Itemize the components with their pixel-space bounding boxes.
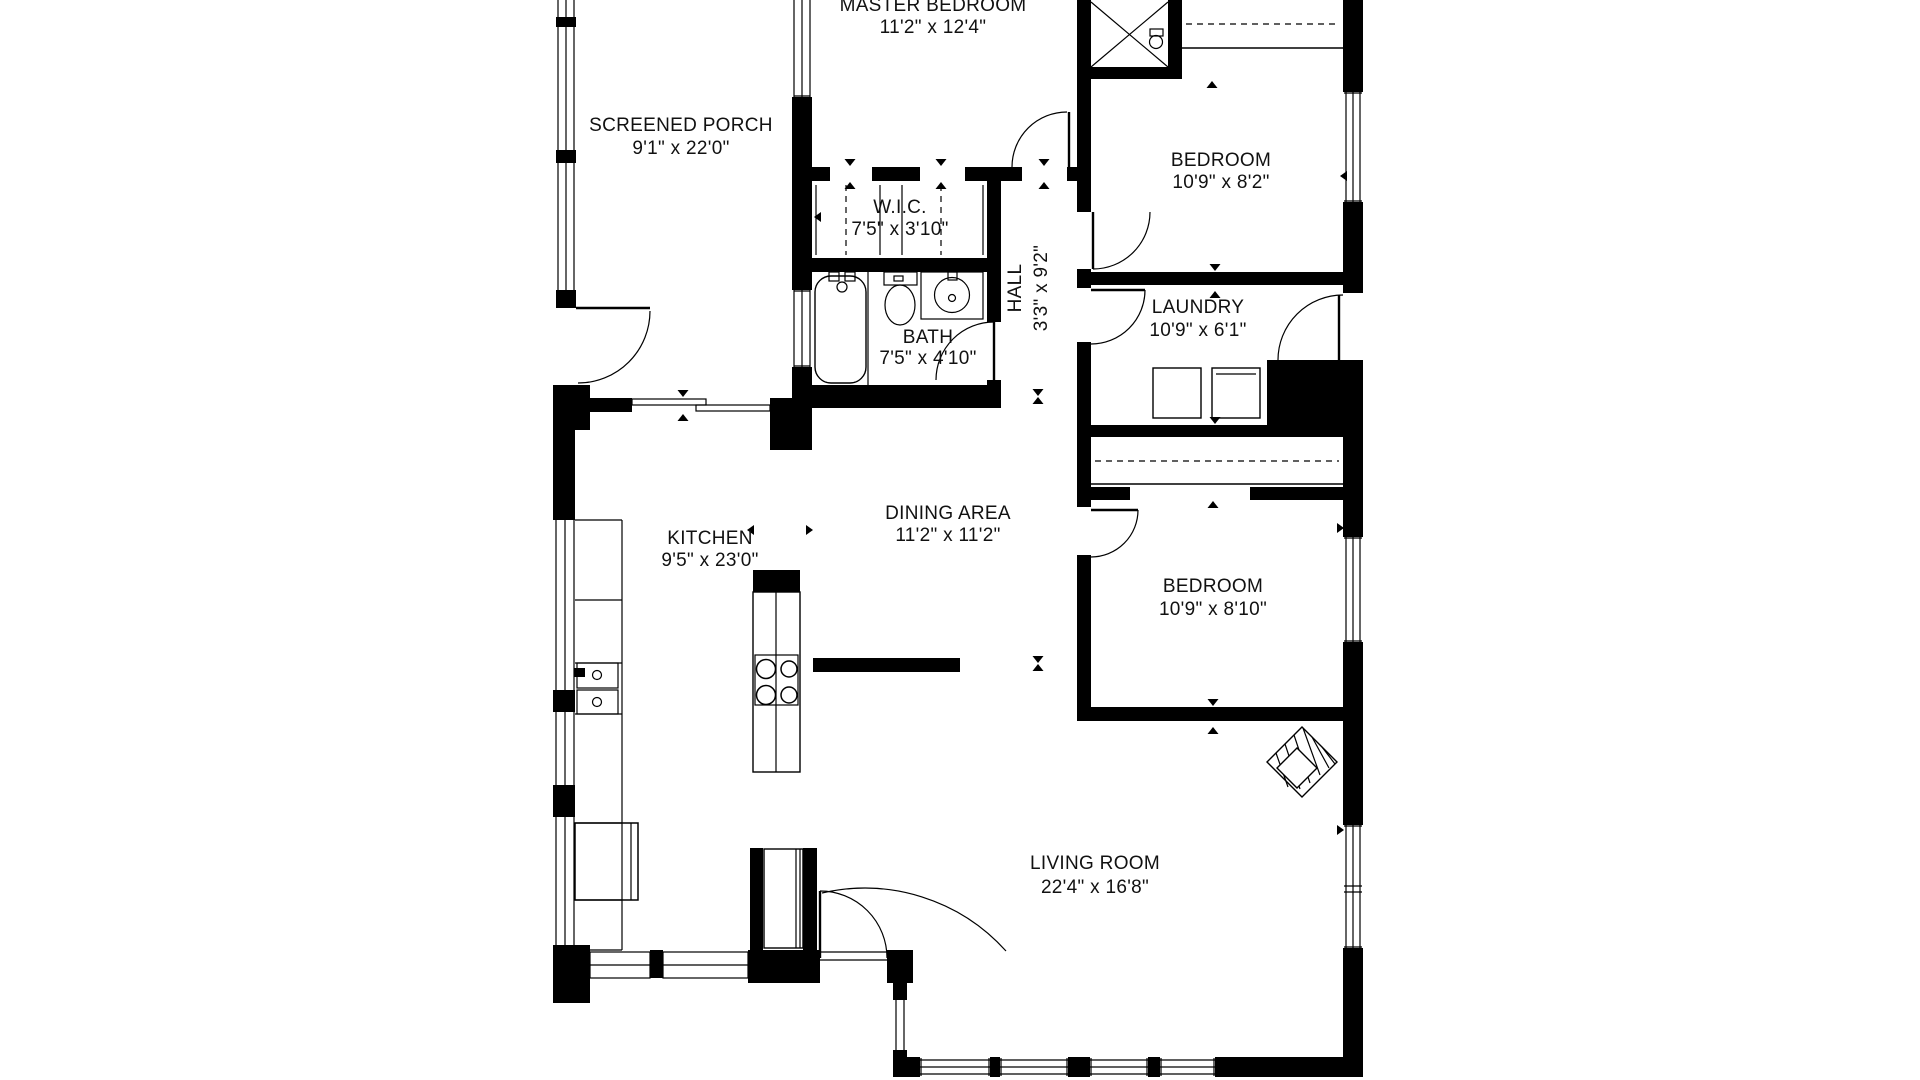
entry-door-part	[820, 891, 887, 958]
toilet-fixture-part	[884, 272, 917, 285]
windows-part	[696, 405, 770, 411]
walls-part	[1077, 425, 1267, 437]
opening-markers-part	[1033, 389, 1044, 396]
walls-part	[1068, 1057, 1090, 1077]
shower-fixture-part	[1150, 36, 1163, 49]
bathtub-fixture	[815, 272, 868, 385]
windows-part	[1344, 92, 1362, 202]
label-living-room-dims: 22'4" x 16'8"	[1041, 877, 1149, 898]
windows-part	[1160, 1058, 1215, 1076]
label-kitchen-dims: 9'5" x 23'0"	[661, 550, 758, 571]
walls-part	[792, 385, 1001, 408]
label-dining-area: DINING AREA	[885, 503, 1011, 524]
walls-part	[753, 570, 800, 592]
walls-part	[792, 167, 830, 181]
opening-markers-part	[678, 390, 689, 397]
bedroom-front-door-part	[1093, 212, 1150, 269]
kitchen-counter-part	[575, 520, 622, 950]
opening-markers-part	[1337, 825, 1344, 835]
walls-part	[893, 983, 907, 1000]
windows-part	[1344, 537, 1362, 642]
laundry-exterior-door	[1278, 295, 1343, 360]
opening-markers-part	[1033, 656, 1044, 663]
label-wic-dims: 7'5" x 3'10"	[851, 219, 948, 240]
windows-part	[632, 399, 706, 405]
washer-dryer-fixture-part	[1212, 368, 1260, 418]
opening-markers-part	[1337, 523, 1344, 533]
label-laundry: LAUNDRY	[1152, 297, 1245, 318]
label-master-bedroom: MASTER BEDROOM	[840, 0, 1027, 16]
walls-part	[887, 950, 913, 983]
windows-part	[1000, 1058, 1068, 1076]
walls-part	[553, 398, 575, 520]
walls-part	[748, 950, 820, 983]
fireplace-fixture	[1267, 727, 1337, 797]
walls-part	[987, 167, 1001, 258]
floor-plan-drawing: MASTER BEDROOM 11'2" x 12'4" SCREENED PO…	[0, 0, 1920, 1080]
opening-markers-part	[1033, 664, 1044, 671]
laundry-hall-door-part	[1091, 290, 1145, 344]
walls-part	[792, 258, 1001, 272]
windows-part	[920, 1058, 990, 1076]
opening-markers-part	[1340, 171, 1347, 181]
walls-part	[556, 150, 576, 163]
bathroom-sink-fixture	[921, 272, 983, 319]
laundry-hall-door	[1091, 290, 1145, 344]
kitchen-counter	[574, 520, 638, 950]
walls-part	[872, 167, 920, 181]
walls-part	[1250, 487, 1343, 500]
opening-markers-part	[845, 159, 856, 166]
room-labels: MASTER BEDROOM 11'2" x 12'4" SCREENED PO…	[589, 0, 1271, 898]
closet-front-bedroom	[1182, 24, 1343, 48]
walls-part	[1077, 0, 1091, 212]
walls-part	[1077, 707, 1363, 721]
walls-part	[893, 1050, 907, 1077]
walls-part	[556, 17, 576, 27]
bedroom-back-door-part	[1091, 510, 1138, 557]
label-bedroom-back: BEDROOM	[1163, 576, 1263, 597]
master-bedroom-door-part	[1012, 112, 1067, 167]
walls-part	[987, 272, 1001, 322]
porch-door-part	[578, 311, 650, 383]
walls-part	[1215, 1057, 1363, 1077]
kitchen-counter-part	[593, 671, 602, 680]
windows-part	[1344, 825, 1362, 948]
label-master-bedroom-dims: 11'2" x 12'4"	[880, 17, 987, 38]
master-bedroom-door	[1012, 112, 1069, 167]
walls-part	[1168, 0, 1182, 79]
walls-part	[553, 945, 590, 1003]
toilet-fixture-part	[885, 285, 915, 325]
opening-markers-part	[1039, 182, 1050, 189]
opening-markers-part	[936, 182, 947, 189]
opening-markers-part	[1210, 264, 1221, 271]
label-wic: W.I.C.	[873, 197, 927, 218]
walls-part	[1077, 487, 1130, 500]
kitchen-counter-part	[577, 690, 618, 714]
walls-part	[556, 290, 576, 308]
walls-part	[1343, 437, 1363, 537]
porch-door	[576, 308, 650, 383]
faucet-icon	[574, 668, 585, 677]
closet-back-bedroom	[1091, 461, 1343, 484]
kitchen-counter-part	[593, 698, 602, 707]
label-hall-dims: 3'3" x 9'2"	[1031, 245, 1052, 331]
label-bedroom-front: BEDROOM	[1171, 150, 1271, 171]
shower-fixture	[1091, 2, 1168, 67]
walls-part	[1343, 0, 1363, 92]
label-dining-area-dims: 11'2" x 11'2"	[895, 525, 1000, 546]
walls-part	[553, 690, 575, 712]
label-living-room: LIVING ROOM	[1030, 853, 1160, 874]
bathroom-sink-fixture-part	[949, 295, 956, 302]
washer-dryer-fixture-part	[1153, 368, 1201, 418]
opening-markers-part	[814, 212, 821, 222]
label-kitchen: KITCHEN	[667, 528, 753, 549]
walls-part	[1077, 67, 1182, 79]
bathroom-sink-fixture-part	[948, 272, 957, 280]
opening-markers-part	[1208, 699, 1219, 706]
walls-part	[813, 658, 960, 672]
label-laundry-dims: 10'9" x 6'1"	[1149, 320, 1246, 341]
entry-closet-part	[764, 849, 803, 948]
opening-markers-part	[1207, 81, 1218, 88]
walls-part	[803, 848, 817, 950]
opening-markers-part	[1208, 501, 1219, 508]
bedroom-back-door	[1091, 510, 1138, 557]
walls-part	[553, 785, 575, 817]
walls-part	[1148, 1057, 1160, 1077]
opening-markers-part	[1208, 727, 1219, 734]
kitchen-island-stove	[753, 592, 800, 772]
opening-markers-part	[1039, 159, 1050, 166]
label-screened-porch-dims: 9'1" x 22'0"	[632, 138, 729, 159]
shower-fixture-part	[1091, 2, 1168, 67]
toilet-fixture	[884, 272, 917, 325]
walls-part	[1077, 555, 1091, 721]
label-screened-porch: SCREENED PORCH	[589, 115, 773, 136]
windows-part	[1090, 1058, 1148, 1076]
opening-markers-part	[936, 159, 947, 166]
windows-part	[820, 952, 887, 960]
walls-part	[1077, 342, 1091, 507]
washer-dryer-fixture	[1153, 368, 1260, 418]
windows-part	[794, 0, 810, 97]
label-bath-dims: 7'5" x 4'10"	[879, 348, 976, 369]
laundry-exterior-door-part	[1278, 295, 1343, 360]
label-bedroom-back-dims: 10'9" x 8'10"	[1159, 599, 1267, 620]
entry-closet	[764, 849, 803, 948]
label-bath: BATH	[903, 327, 953, 348]
label-bedroom-front-dims: 10'9" x 8'2"	[1172, 172, 1269, 193]
label-hall: HALL	[1005, 264, 1026, 313]
walls-part	[650, 950, 663, 978]
opening-markers-part	[678, 414, 689, 421]
walls-part	[1077, 272, 1363, 285]
floor-plan-page: MASTER BEDROOM 11'2" x 12'4" SCREENED PO…	[0, 0, 1920, 1080]
opening-markers-part	[806, 525, 813, 535]
windows-part	[794, 290, 810, 367]
entry-door	[820, 888, 1006, 958]
bedroom-front-door	[1093, 212, 1150, 269]
windows-part	[556, 520, 574, 945]
opening-markers-part	[1033, 397, 1044, 404]
refrigerator-fixture	[575, 823, 638, 900]
opening-markers-part	[1210, 417, 1221, 424]
walls-part	[1267, 360, 1363, 437]
windows-part	[896, 1000, 904, 1050]
walls-part	[990, 1057, 1000, 1077]
walls-part	[750, 848, 763, 950]
walls-part	[1343, 642, 1363, 825]
walls-part	[1343, 202, 1363, 293]
walls-part	[907, 1057, 920, 1077]
toilet-fixture-part	[894, 276, 903, 281]
